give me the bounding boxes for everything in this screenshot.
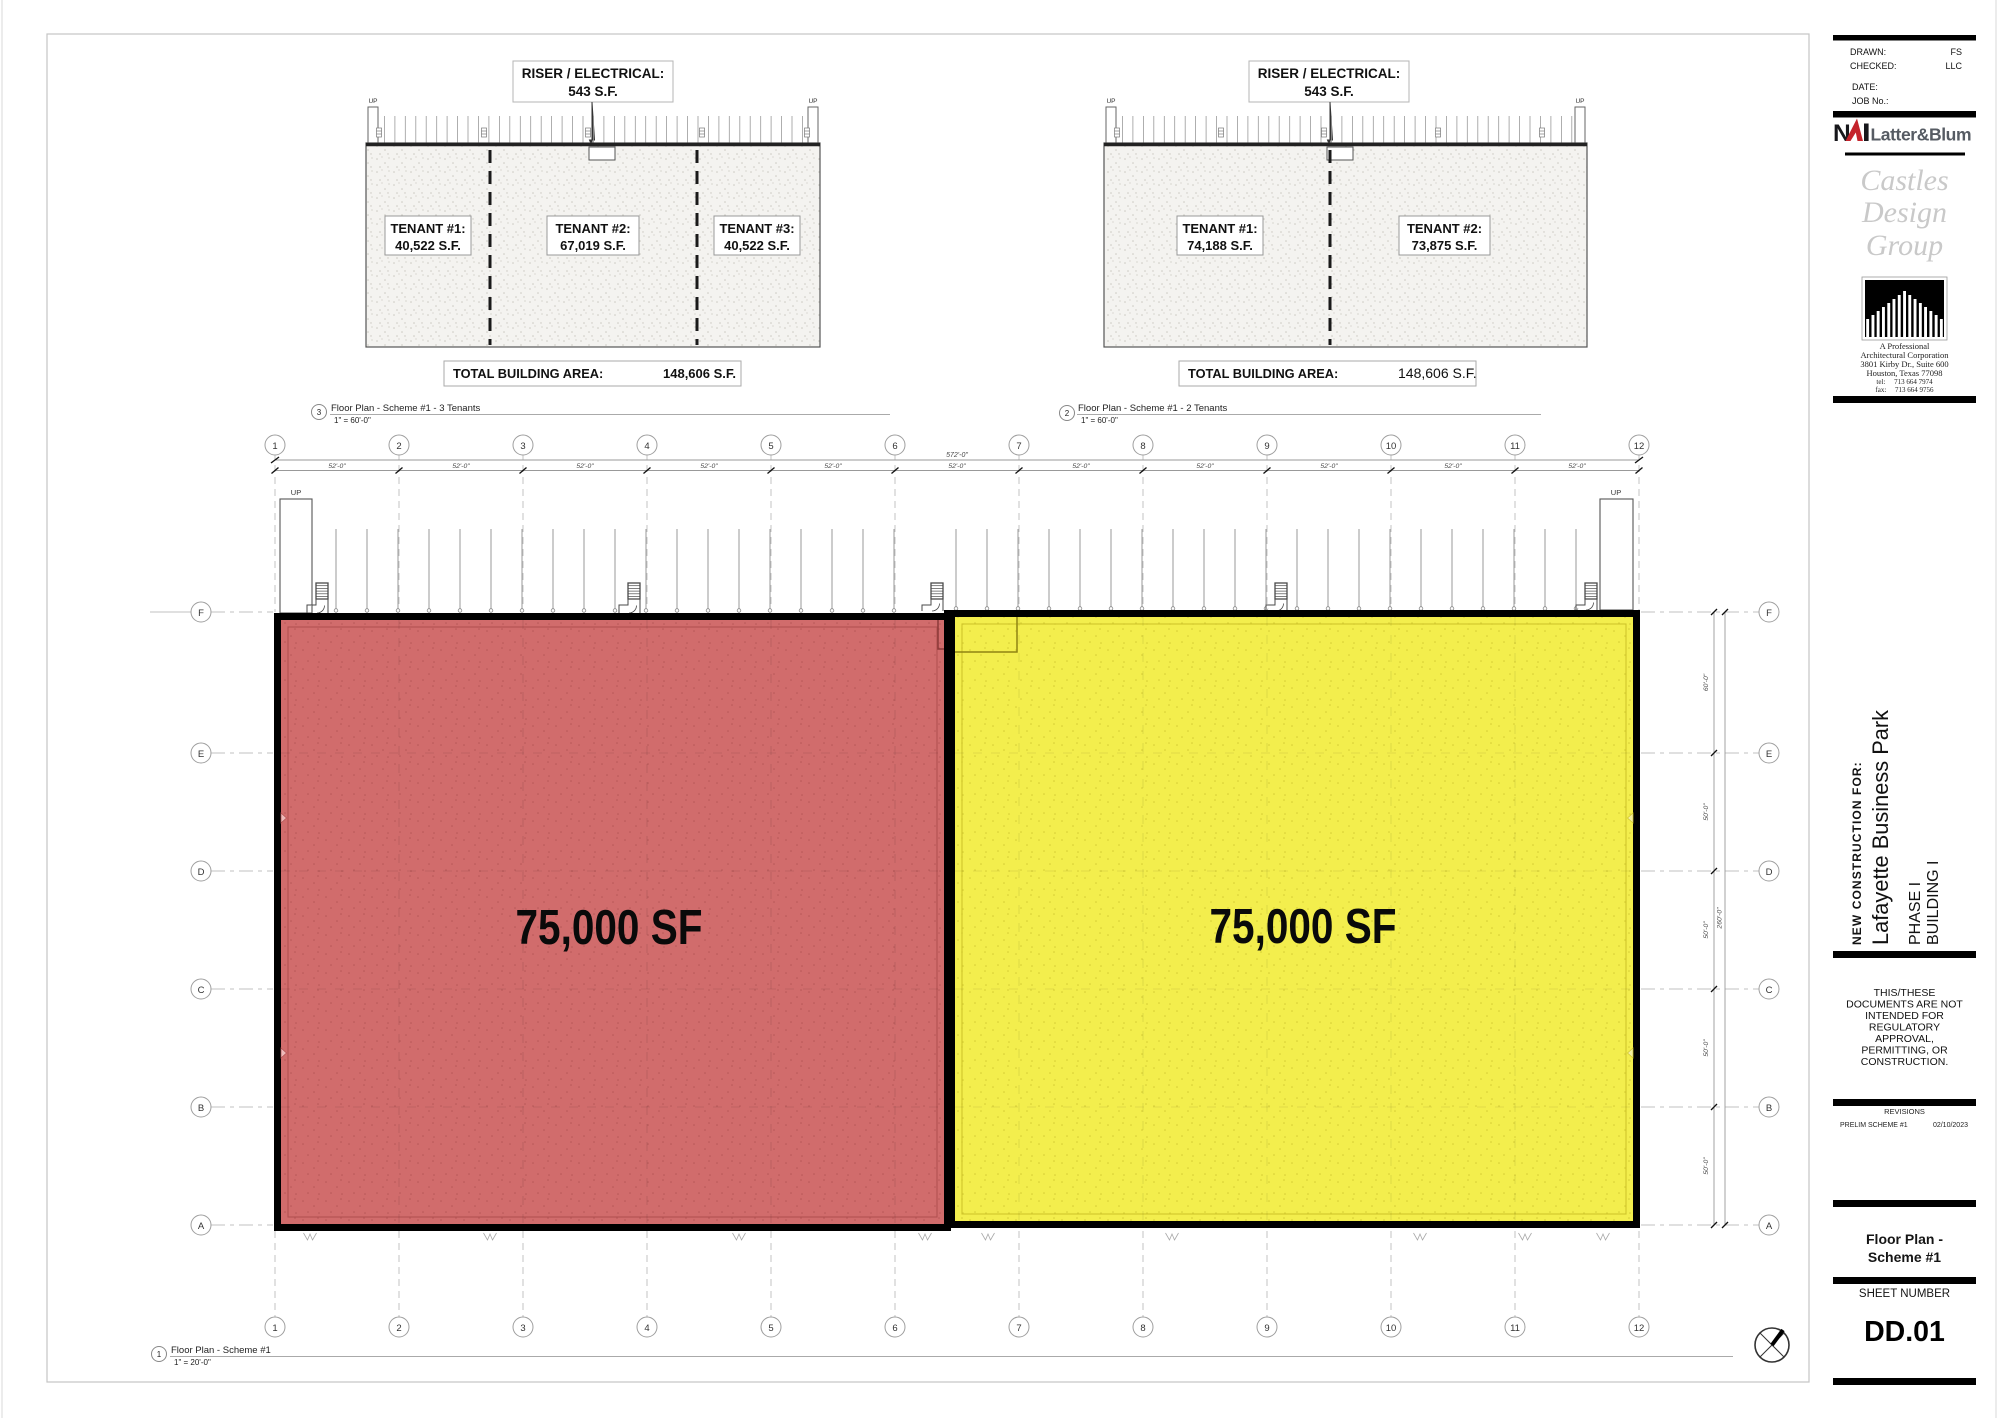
svg-text:3: 3 (520, 441, 525, 452)
svg-text:12: 12 (1634, 441, 1645, 452)
svg-text:NEW CONSTRUCTION FOR:: NEW CONSTRUCTION FOR: (1850, 761, 1864, 945)
svg-text:fax: 713 664 9756: fax: 713 664 9756 (1875, 386, 1934, 394)
svg-text:40,522 S.F.: 40,522 S.F. (395, 238, 461, 253)
svg-text:UP: UP (1611, 488, 1621, 497)
svg-text:67,019 S.F.: 67,019 S.F. (560, 238, 626, 253)
svg-text:9: 9 (1264, 1323, 1269, 1334)
svg-text:tel: 713 664 7974: tel: 713 664 7974 (1876, 378, 1933, 386)
svg-text:3: 3 (317, 408, 322, 417)
svg-text:11: 11 (1510, 1323, 1520, 1334)
svg-text:73,875 S.F.: 73,875 S.F. (1412, 238, 1478, 253)
svg-text:52'-0": 52'-0" (1072, 463, 1090, 470)
svg-text:TENANT #1:: TENANT #1: (390, 221, 465, 236)
svg-text:UP: UP (808, 98, 817, 105)
svg-text:JOB No.:: JOB No.: (1852, 96, 1889, 106)
svg-text:SHEET NUMBER: SHEET NUMBER (1859, 1288, 1950, 1300)
svg-text:40,522 S.F.: 40,522 S.F. (724, 238, 790, 253)
svg-text:UP: UP (1575, 98, 1584, 105)
svg-text:TOTAL BUILDING AREA:: TOTAL BUILDING AREA: (1188, 366, 1338, 381)
svg-text:UP: UP (368, 98, 377, 105)
svg-text:D: D (198, 867, 205, 878)
svg-text:Lafayette Business Park: Lafayette Business Park (1868, 710, 1893, 945)
svg-text:REGULATORY: REGULATORY (1869, 1022, 1940, 1034)
svg-text:50'-0": 50'-0" (1703, 1157, 1710, 1175)
svg-text:02/10/2023: 02/10/2023 (1933, 1122, 1968, 1129)
svg-text:Design: Design (1861, 196, 1947, 229)
svg-text:CHECKED:: CHECKED: (1850, 61, 1897, 71)
svg-text:50'-0": 50'-0" (1703, 921, 1710, 939)
svg-text:Floor Plan - Scheme #1 - 2 Ten: Floor Plan - Scheme #1 - 2 Tenants (1078, 403, 1228, 414)
svg-text:RISER / ELECTRICAL:: RISER / ELECTRICAL: (522, 66, 665, 81)
svg-text:PERMITTING, OR: PERMITTING, OR (1861, 1045, 1948, 1057)
svg-text:11: 11 (1510, 441, 1520, 452)
svg-text:C: C (198, 985, 205, 996)
svg-text:148,606 S.F.: 148,606 S.F. (1398, 365, 1477, 381)
svg-text:Castles: Castles (1860, 164, 1948, 197)
svg-text:E: E (1766, 749, 1772, 760)
svg-text:52'-0": 52'-0" (1444, 463, 1462, 470)
svg-text:1: 1 (272, 441, 277, 452)
svg-text:CONSTRUCTION.: CONSTRUCTION. (1861, 1056, 1949, 1068)
svg-text:APPROVAL,: APPROVAL, (1875, 1033, 1934, 1045)
svg-text:52'-0": 52'-0" (328, 463, 346, 470)
svg-text:52'-0": 52'-0" (1320, 463, 1338, 470)
svg-text:Floor Plan -: Floor Plan - (1866, 1231, 1943, 1247)
svg-text:1: 1 (272, 1323, 277, 1334)
svg-text:52'-0": 52'-0" (576, 463, 594, 470)
svg-text:Floor Plan - Scheme #1: Floor Plan - Scheme #1 (171, 1345, 271, 1356)
svg-text:Latter&Blum: Latter&Blum (1871, 125, 1972, 145)
svg-text:RISER / ELECTRICAL:: RISER / ELECTRICAL: (1258, 66, 1401, 81)
svg-text:52'-0": 52'-0" (824, 463, 842, 470)
svg-text:LLC: LLC (1945, 61, 1962, 71)
svg-text:F: F (198, 608, 204, 619)
svg-text:52'-0": 52'-0" (700, 463, 718, 470)
svg-text:INTENDED FOR: INTENDED FOR (1865, 1010, 1944, 1022)
svg-text:52'-0": 52'-0" (1196, 463, 1214, 470)
svg-text:UP: UP (1106, 98, 1115, 105)
svg-text:DATE:: DATE: (1852, 82, 1878, 92)
svg-text:A: A (1766, 1221, 1773, 1232)
svg-text:543 S.F.: 543 S.F. (568, 84, 618, 99)
svg-text:D: D (1766, 867, 1773, 878)
svg-text:TENANT #2:: TENANT #2: (1407, 221, 1482, 236)
svg-text:PRELIM SCHEME #1: PRELIM SCHEME #1 (1840, 1122, 1908, 1129)
svg-text:543 S.F.: 543 S.F. (1304, 84, 1354, 99)
svg-text:74,188 S.F.: 74,188 S.F. (1187, 238, 1253, 253)
svg-text:THIS/THESE: THIS/THESE (1874, 987, 1936, 999)
svg-text:DRAWN:: DRAWN: (1850, 47, 1886, 57)
svg-text:N: N (1833, 120, 1850, 147)
svg-text:Floor Plan - Scheme #1 - 3 Ten: Floor Plan - Scheme #1 - 3 Tenants (331, 403, 481, 414)
svg-text:REVISIONS: REVISIONS (1884, 1107, 1925, 1116)
svg-text:TENANT #2:: TENANT #2: (555, 221, 630, 236)
svg-text:2: 2 (396, 1323, 401, 1334)
svg-text:DD.01: DD.01 (1864, 1316, 1945, 1348)
svg-text:B: B (198, 1103, 204, 1114)
svg-text:52'-0": 52'-0" (1568, 463, 1586, 470)
svg-text:3: 3 (520, 1323, 525, 1334)
svg-text:6: 6 (892, 441, 897, 452)
svg-text:52'-0": 52'-0" (452, 463, 470, 470)
svg-text:1" = 20'-0": 1" = 20'-0" (174, 1358, 211, 1367)
svg-text:A: A (198, 1221, 205, 1232)
svg-text:1" = 60'-0": 1" = 60'-0" (334, 416, 371, 425)
svg-text:BUILDING I: BUILDING I (1925, 861, 1942, 945)
svg-text:148,606 S.F.: 148,606 S.F. (663, 366, 736, 381)
svg-text:8: 8 (1140, 441, 1145, 452)
svg-text:5: 5 (768, 441, 773, 452)
svg-text:52'-0": 52'-0" (948, 463, 966, 470)
svg-text:Houston, Texas 77098: Houston, Texas 77098 (1867, 368, 1943, 378)
svg-text:260'-0": 260'-0" (1717, 907, 1724, 930)
svg-text:DOCUMENTS ARE NOT: DOCUMENTS ARE NOT (1846, 999, 1963, 1011)
svg-text:7: 7 (1016, 1323, 1021, 1334)
svg-text:F: F (1766, 608, 1772, 619)
svg-text:50'-0": 50'-0" (1703, 803, 1710, 821)
svg-text:10: 10 (1386, 1323, 1397, 1334)
svg-text:PHASE I: PHASE I (1907, 882, 1924, 945)
svg-text:5: 5 (768, 1323, 773, 1334)
svg-text:4: 4 (644, 1323, 649, 1334)
svg-text:9: 9 (1264, 441, 1269, 452)
svg-text:TOTAL BUILDING AREA:: TOTAL BUILDING AREA: (453, 366, 603, 381)
svg-text:12: 12 (1634, 1323, 1645, 1334)
svg-text:B: B (1766, 1103, 1772, 1114)
svg-text:10: 10 (1386, 441, 1397, 452)
svg-text:Scheme #1: Scheme #1 (1868, 1249, 1941, 1265)
svg-text:TENANT #3:: TENANT #3: (719, 221, 794, 236)
svg-text:FS: FS (1950, 47, 1962, 57)
svg-text:1: 1 (157, 1350, 162, 1359)
svg-text:7: 7 (1016, 441, 1021, 452)
svg-text:75,000 SF: 75,000 SF (516, 901, 703, 955)
svg-text:2: 2 (396, 441, 401, 452)
svg-text:8: 8 (1140, 1323, 1145, 1334)
svg-text:TENANT #1:: TENANT #1: (1182, 221, 1257, 236)
svg-text:2: 2 (1065, 409, 1070, 418)
svg-text:C: C (1766, 985, 1773, 996)
svg-text:75,000 SF: 75,000 SF (1210, 900, 1397, 954)
svg-text:572'-0": 572'-0" (946, 452, 968, 459)
svg-text:UP: UP (291, 488, 301, 497)
svg-text:6: 6 (892, 1323, 897, 1334)
svg-text:60'-0": 60'-0" (1703, 673, 1710, 691)
svg-text:E: E (198, 749, 204, 760)
svg-text:1" = 60'-0": 1" = 60'-0" (1081, 416, 1118, 425)
svg-text:4: 4 (644, 441, 649, 452)
svg-text:Group: Group (1866, 229, 1943, 262)
svg-text:50'-0": 50'-0" (1703, 1039, 1710, 1057)
